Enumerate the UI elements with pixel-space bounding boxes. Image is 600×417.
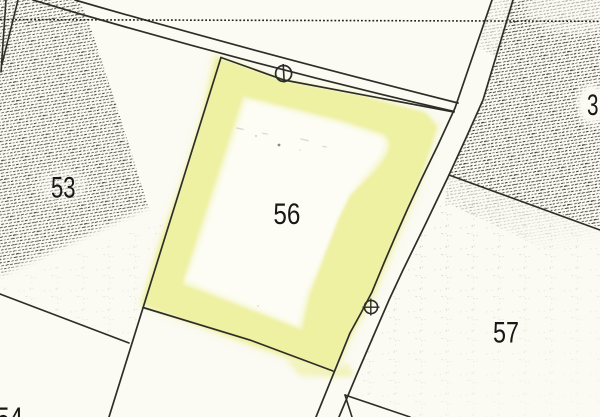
svg-text:57: 57: [493, 317, 519, 350]
svg-text:56: 56: [273, 198, 300, 231]
svg-text:3: 3: [587, 89, 599, 122]
svg-text:54: 54: [0, 402, 23, 417]
svg-text:53: 53: [51, 172, 76, 205]
